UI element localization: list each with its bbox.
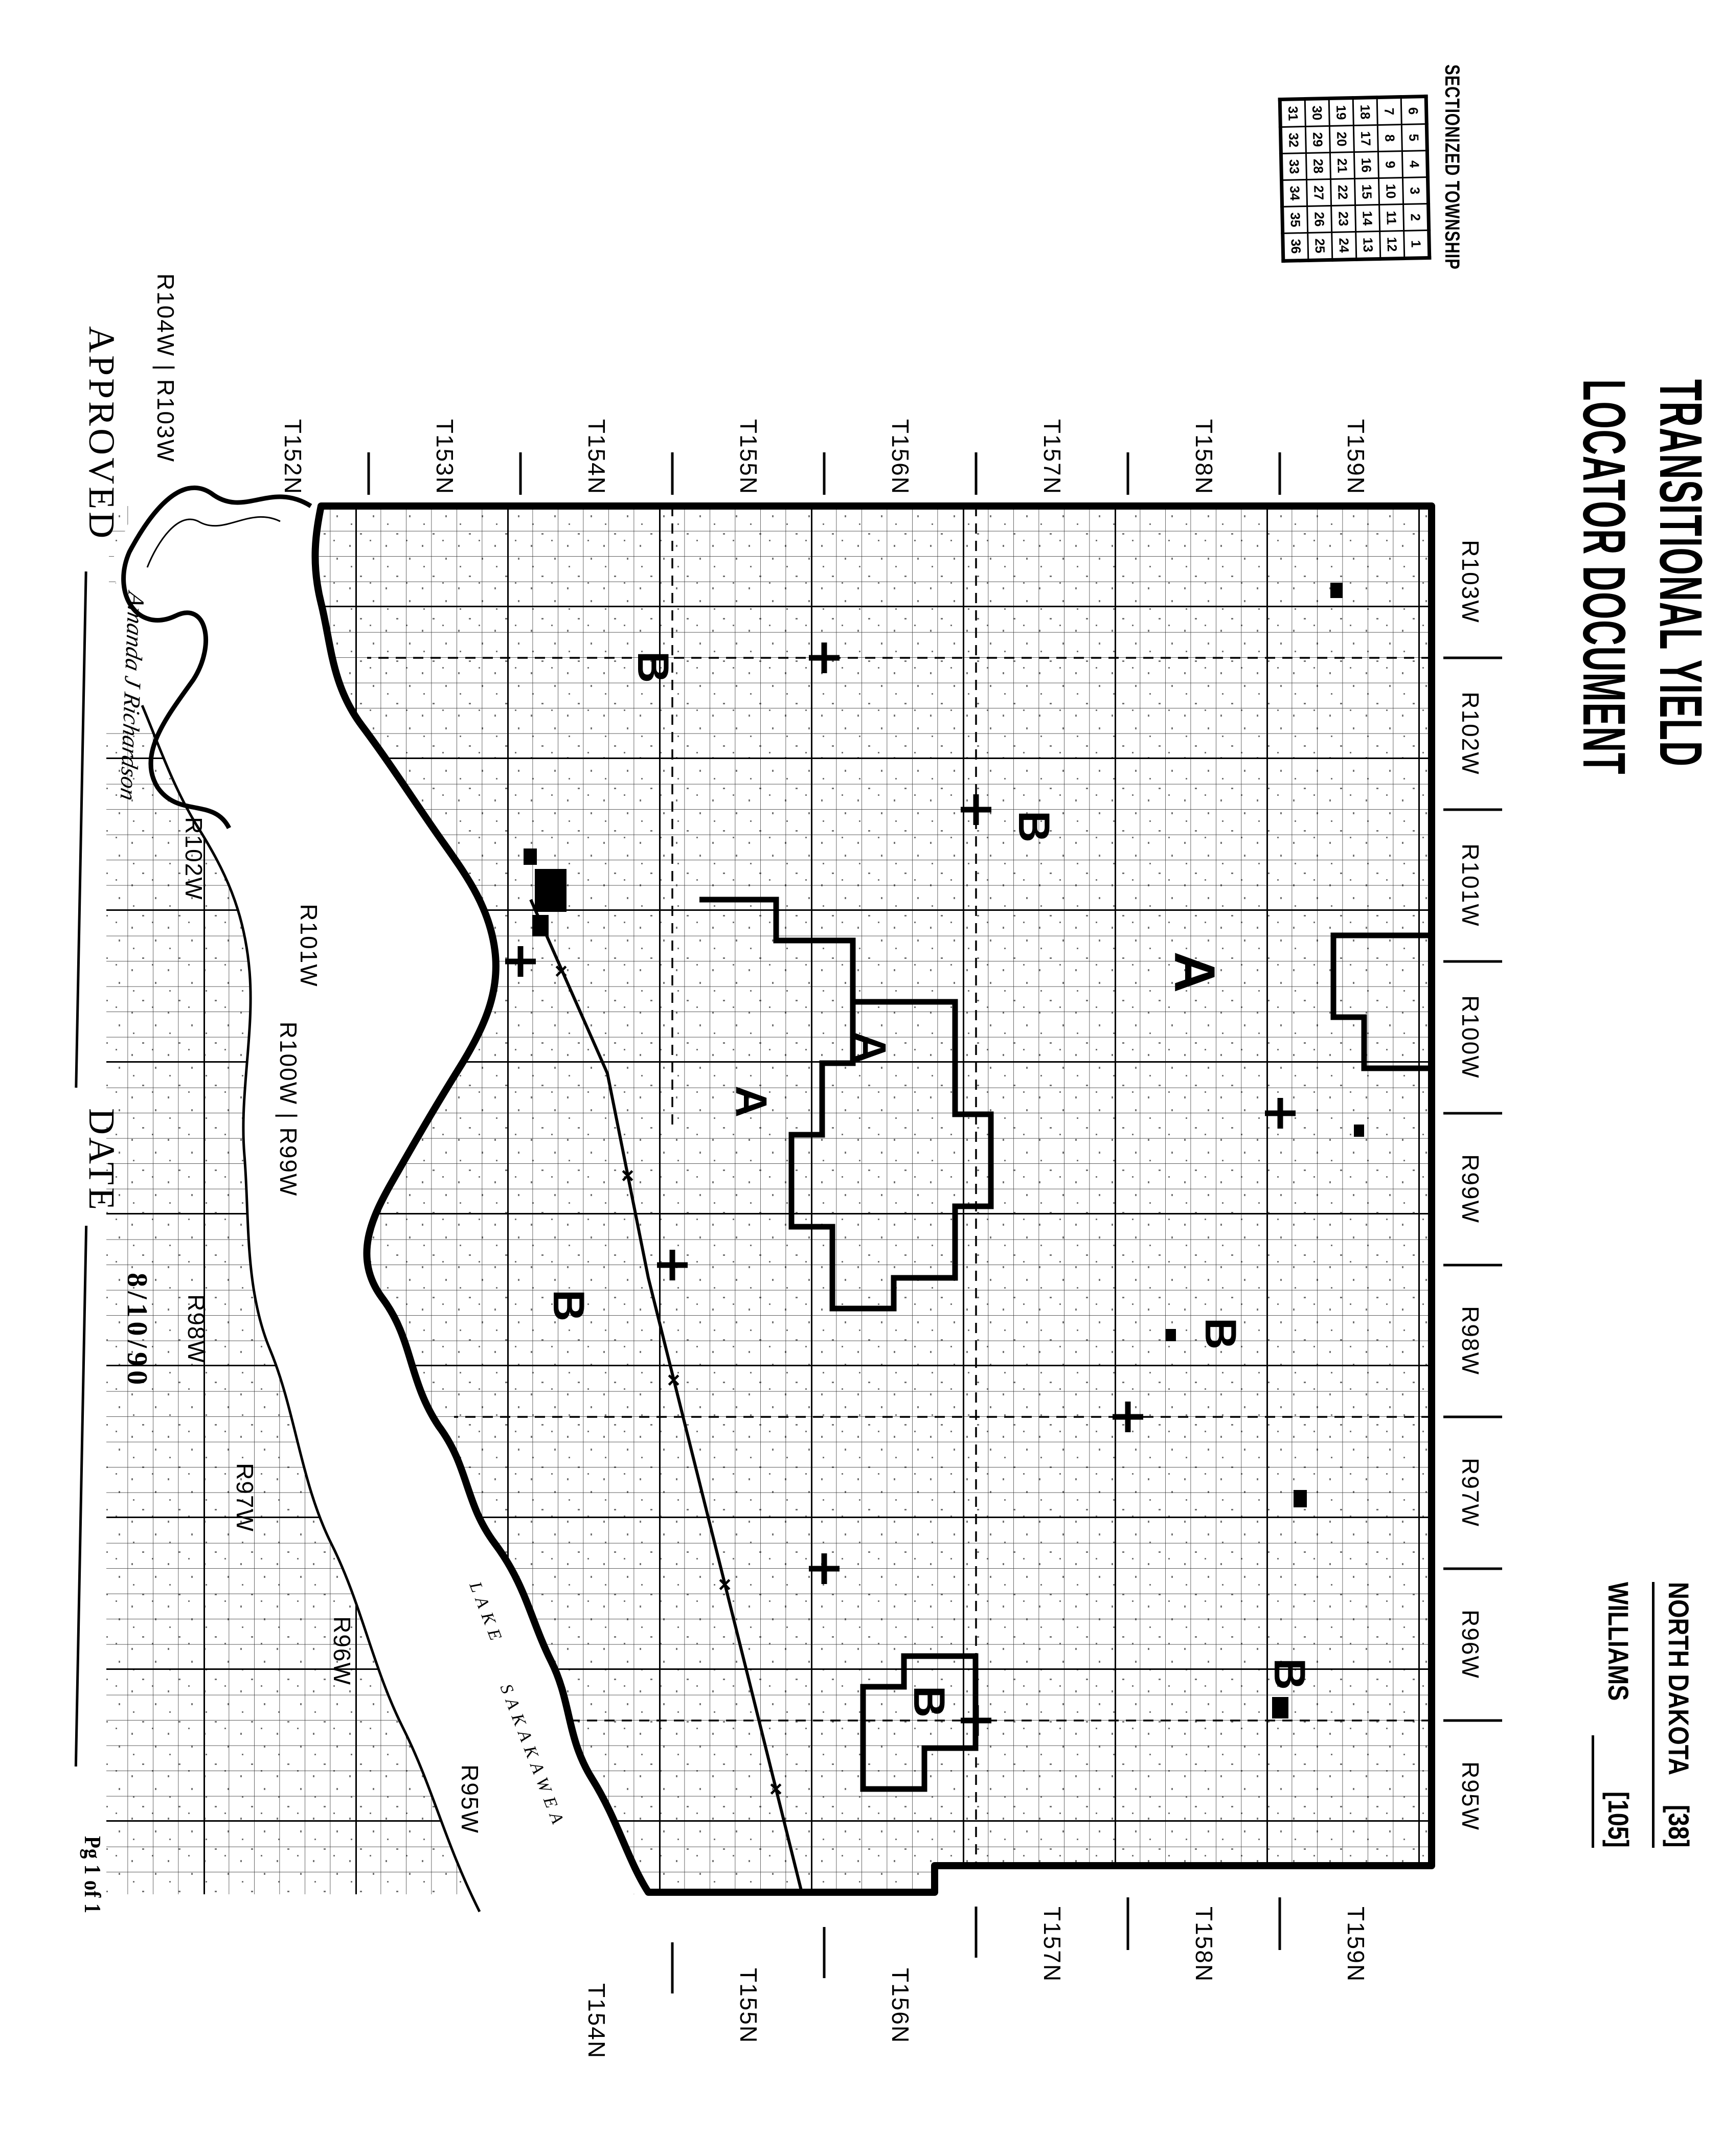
county-underline [1592, 1735, 1594, 1848]
r-label: R95W [457, 1764, 483, 1834]
r-label: R96W [1457, 1610, 1484, 1679]
section-cell: 24 [1332, 232, 1356, 260]
section-cell: 8 [1377, 125, 1402, 152]
page-number: Pg 1 of 1 [79, 1836, 106, 1914]
r-label: R100W [1457, 995, 1484, 1079]
t-label: T158N [1191, 419, 1217, 495]
region-letter: A [846, 1032, 895, 1064]
t-label: T152N [280, 419, 306, 495]
r-label: R103W [1457, 540, 1484, 623]
r-label: R102W [180, 817, 207, 900]
section-cell: 12 [1380, 231, 1404, 259]
section-cell: 36 [1283, 233, 1308, 261]
region-letter: A [727, 1086, 776, 1117]
section-cell: 22 [1331, 179, 1355, 206]
state-underline [1652, 1582, 1655, 1848]
section-cell: 13 [1356, 231, 1380, 259]
title-line-2: LOCATOR DOCUMENT [1566, 379, 1642, 775]
county-code: [105] [1602, 1792, 1635, 1848]
region-letter: B [628, 651, 677, 683]
state-code: [38] [1662, 1805, 1695, 1848]
section-cell: 32 [1280, 126, 1306, 153]
section-cell: 5 [1401, 124, 1427, 151]
section-cell: 9 [1378, 151, 1402, 178]
section-cell: 15 [1355, 178, 1379, 205]
section-cell: 21 [1330, 152, 1354, 179]
section-cell: 23 [1331, 205, 1356, 232]
r-label: R101W [1457, 843, 1484, 927]
section-cell: 31 [1280, 99, 1305, 127]
section-cell: 33 [1281, 153, 1306, 180]
date-label: DATE [80, 1108, 123, 1212]
section-cell: 4 [1402, 151, 1428, 178]
t-label: T157N [1039, 1907, 1066, 1982]
section-cell: 20 [1329, 126, 1354, 153]
section-cell: 11 [1379, 204, 1404, 232]
r-label: R95W [1457, 1761, 1484, 1831]
sectionized-township-table: 6 5 4 3 2 1 7 8 9 10 11 12 18 17 16 15 1… [1278, 95, 1432, 263]
section-cell: 6 [1401, 97, 1426, 125]
t-label: T159N [1343, 419, 1369, 495]
date-value: 8/10/90 [121, 1273, 153, 1389]
svg-text:×: × [549, 965, 574, 978]
t-label: T154N [583, 419, 610, 495]
section-cell: 10 [1378, 178, 1403, 205]
section-cell: 16 [1354, 152, 1378, 179]
section-cell: 2 [1403, 203, 1429, 231]
t-label: T155N [735, 1968, 762, 2044]
r-label: R104W | R103W [152, 273, 179, 463]
state-county-block: NORTH DAKOTA [38] WILLIAMS [105] [1547, 1582, 1695, 1848]
r-label: R98W [183, 1294, 210, 1364]
section-cell: 28 [1306, 152, 1330, 179]
section-cell: 35 [1282, 206, 1308, 233]
t-label: T157N [1039, 419, 1066, 495]
t-label: T156N [887, 1968, 914, 2044]
document-title: TRANSITIONAL YIELD LOCATOR DOCUMENT [1566, 379, 1719, 775]
r-label: R100W | R99W [275, 1022, 302, 1197]
r-label: R102W [1457, 692, 1484, 775]
section-cell: 1 [1404, 230, 1430, 258]
svg-text:×: × [712, 1578, 737, 1591]
r-label: R97W [232, 1463, 258, 1532]
region-letter: B [1009, 811, 1058, 842]
section-cell: 18 [1353, 98, 1377, 126]
scanned-page: ×× ×× × B [0, 0, 1722, 2156]
section-cell: 30 [1305, 99, 1329, 127]
approved-label: APPROVED [80, 326, 123, 541]
t-label: T154N [583, 1983, 610, 2059]
county-map: ×× ×× × B [0, 0, 1722, 2156]
section-cell: 26 [1307, 205, 1332, 233]
region-letter: B [1196, 1318, 1245, 1349]
t-label: T153N [432, 419, 458, 495]
county-name: WILLIAMS [1602, 1582, 1635, 1701]
svg-text:×: × [763, 1782, 788, 1796]
title-line-1: TRANSITIONAL YIELD [1642, 379, 1719, 775]
section-cell: 17 [1353, 125, 1378, 152]
t-label: T155N [735, 419, 762, 495]
r-label: R101W [296, 904, 322, 987]
landscape-document: ×× ×× × B [0, 0, 1722, 2156]
region-letter: B [904, 1686, 954, 1717]
section-cell: 3 [1402, 177, 1428, 204]
region-letter: B [544, 1290, 593, 1321]
section-cell: 14 [1355, 205, 1380, 232]
r-label: R98W [1457, 1306, 1484, 1375]
t-label: T158N [1191, 1907, 1217, 1982]
section-cell: 25 [1308, 232, 1332, 260]
r-label: R99W [1457, 1154, 1484, 1224]
sectionized-township-label: SECTIONIZED TOWNSHIP [1440, 64, 1463, 270]
t-label: T159N [1343, 1907, 1369, 1982]
state-name: NORTH DAKOTA [1662, 1582, 1695, 1775]
section-cell: 27 [1307, 179, 1331, 206]
region-letter: A [1163, 952, 1227, 993]
section-cell: 34 [1282, 179, 1307, 207]
svg-text:×: × [661, 1373, 686, 1387]
section-cell: 29 [1305, 126, 1330, 153]
section-cell: 7 [1377, 97, 1401, 125]
t-label: T156N [887, 419, 914, 495]
section-cell: 19 [1329, 98, 1353, 126]
region-letter: B [1265, 1658, 1314, 1690]
range-labels-north: R103W R102W R101W R100W R99W R98W R97W R… [1457, 540, 1484, 1831]
r-label: R97W [1457, 1458, 1484, 1527]
r-label: R96W [329, 1616, 355, 1686]
svg-text:×: × [615, 1169, 640, 1182]
